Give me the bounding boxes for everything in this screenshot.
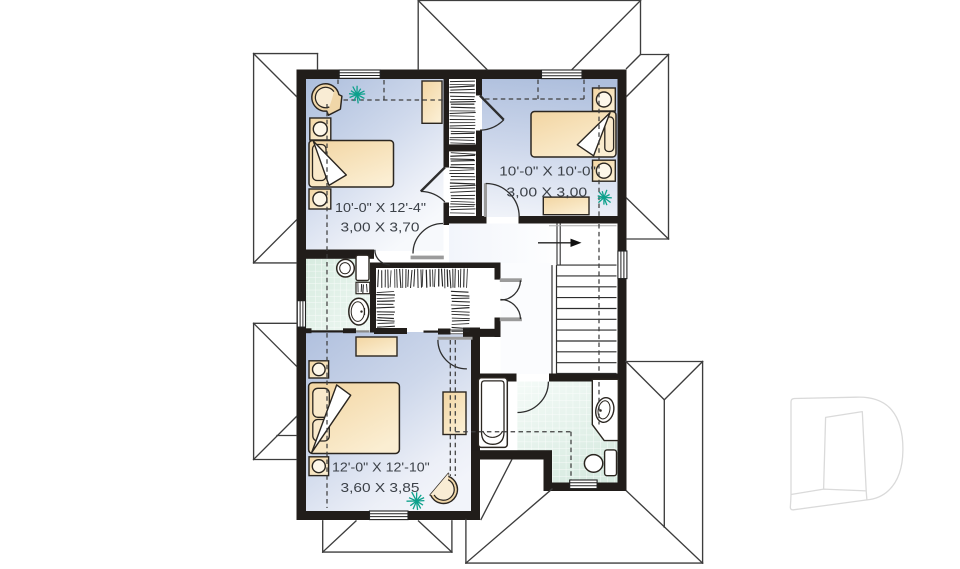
svg-text:12'-0" X 12'-10": 12'-0" X 12'-10" <box>332 460 430 475</box>
svg-text:10'-0" X 12'-4": 10'-0" X 12'-4" <box>335 200 426 215</box>
svg-text:3,00 X 3,00: 3,00 X 3,00 <box>506 184 587 199</box>
svg-text:3,00 X 3,70: 3,00 X 3,70 <box>341 220 420 235</box>
svg-text:10'-0" X 10'-0": 10'-0" X 10'-0" <box>499 163 596 178</box>
svg-text:3,60 X 3,85: 3,60 X 3,85 <box>341 480 420 495</box>
